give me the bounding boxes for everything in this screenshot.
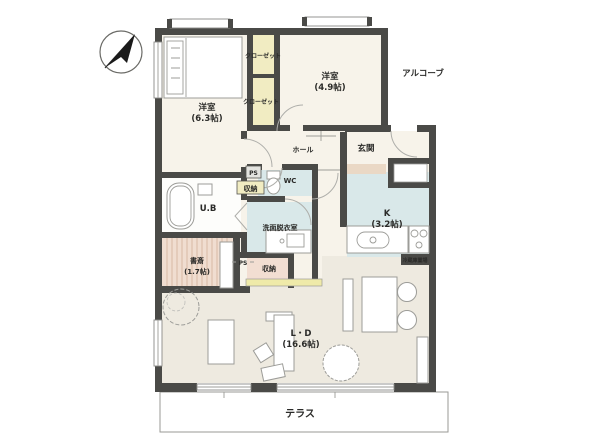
kitchen-label: K: [384, 209, 391, 219]
stove: [409, 226, 429, 253]
bedroom1-size: (6.3帖): [191, 113, 222, 124]
sliding-door: [246, 279, 322, 286]
entrance-label: 玄関: [357, 143, 374, 154]
bed: [164, 37, 242, 98]
north-compass-icon: [100, 31, 142, 73]
ld-label: L・D: [291, 329, 312, 339]
storage2-label: 収納: [262, 264, 276, 273]
ld-size: (16.6帖): [282, 339, 319, 350]
round-table: [323, 345, 359, 381]
study-desk: [220, 242, 233, 288]
terrace-label: テラス: [285, 408, 315, 420]
washroom-label: 洗面脱衣室: [263, 223, 298, 232]
bedroom2-label: 洋室: [321, 71, 339, 82]
storage1-label: 収納: [244, 184, 258, 193]
ps1-label: PS: [249, 170, 258, 177]
wc-label: WC: [284, 177, 297, 185]
closet1-label: クローゼット: [245, 52, 281, 60]
bedroom1-label: 洋室: [198, 102, 216, 113]
washbasin: [266, 230, 311, 253]
tv-board: [208, 320, 234, 364]
kitchen-counter: [347, 226, 408, 253]
kitchen-size: (3.2帖): [371, 219, 402, 230]
closet2-label: クローゼット: [243, 98, 279, 106]
floor-plan-page: テラス: [0, 0, 600, 446]
toilet: [267, 171, 280, 194]
entrance-step: [346, 164, 386, 174]
terrace: テラス: [160, 392, 448, 432]
study-label: 書斎: [190, 256, 204, 265]
entrance-niche: [394, 164, 427, 182]
ub-label: U.B: [200, 204, 217, 214]
bedroom2-size: (4.9帖): [314, 82, 345, 93]
floor-plan-drawing: テラス: [0, 0, 600, 446]
alcove-label: アルコーブ: [402, 68, 444, 79]
study-size: (1.7帖): [184, 267, 210, 276]
hall-label: ホール: [293, 146, 314, 154]
fridge-label: 冷蔵庫置場: [402, 257, 427, 264]
ps2-label: PS: [239, 260, 248, 267]
